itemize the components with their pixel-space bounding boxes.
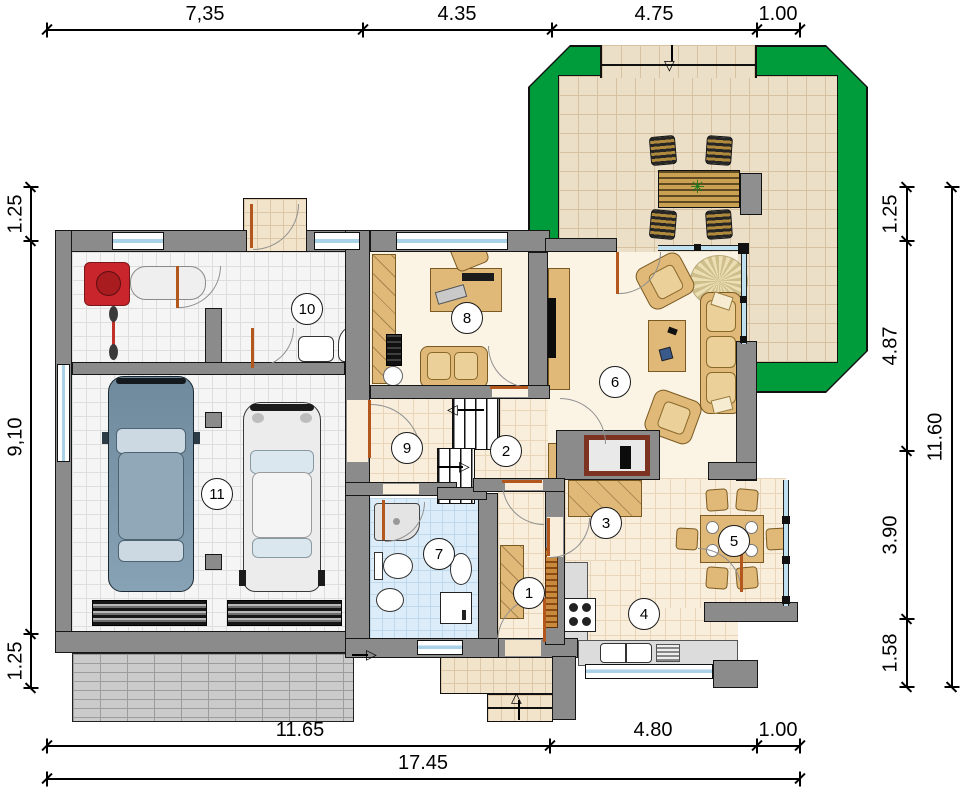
- room-number: 1: [525, 585, 533, 602]
- room-badge-11: 11: [201, 478, 233, 510]
- living-top-wall: [545, 238, 617, 252]
- car-white-headlight: [300, 413, 312, 423]
- door-leaf: [490, 386, 528, 389]
- window-kitchen: [585, 664, 713, 679]
- dim-tick: [945, 686, 960, 688]
- door-leaf: [176, 266, 179, 308]
- glass-mullion: [782, 556, 790, 564]
- washing-machine: [440, 592, 472, 624]
- room-badge-3: 3: [590, 507, 622, 539]
- office-side-table: [383, 366, 403, 386]
- terrace-step-line: [600, 64, 757, 66]
- room-badge-9: 9: [391, 432, 423, 464]
- room-badge-8: 8: [451, 302, 483, 334]
- window-garage-left: [57, 364, 70, 462]
- garage-door: [227, 600, 342, 626]
- terrace-entry-step: [600, 45, 757, 78]
- floor-plan: ▽ ✳ △ ▷: [0, 0, 966, 800]
- living-right-jut: [708, 462, 757, 480]
- window-bathroom: [417, 640, 463, 655]
- dim-line-bottom-outer: [47, 778, 800, 780]
- tv-screen: [548, 298, 556, 358]
- stove-burner: [582, 617, 591, 626]
- stairs-arrow-icon: ▷: [459, 459, 470, 473]
- door-gap: [383, 484, 419, 494]
- garage-front-wall: [55, 631, 370, 653]
- room-number: 4: [640, 606, 648, 623]
- room-badge-1: 1: [513, 577, 545, 609]
- window-office: [396, 232, 508, 250]
- car-blue-mirror: [102, 432, 108, 444]
- dim-line-bottom-inner: [47, 745, 800, 747]
- stove-burner: [569, 617, 578, 626]
- door-gap: [505, 640, 541, 656]
- porch-right-wall: [552, 656, 576, 720]
- terrace-chair: [705, 135, 733, 166]
- glass-dining-bay: [783, 480, 789, 606]
- room-badge-7: 7: [423, 538, 455, 570]
- door-leaf: [543, 598, 546, 642]
- window-utility-1: [112, 232, 164, 250]
- dim-tick: [24, 240, 39, 242]
- car-white-front-trim: [250, 404, 314, 411]
- terrace-entry-arrow-icon: ▽: [664, 58, 675, 72]
- dim-label-bottom-1: 11.65: [276, 719, 325, 742]
- room-number: 10: [299, 301, 316, 318]
- glass-mullion: [782, 596, 790, 604]
- dim-label-top-3: 4.75: [635, 3, 674, 26]
- dim-label-left-3: 1.25: [5, 642, 28, 681]
- dining-chair: [675, 527, 698, 550]
- room-badge-5: 5: [718, 525, 750, 557]
- dim-label-right-total: 11.60: [925, 413, 948, 462]
- room-number: 7: [435, 546, 443, 563]
- window-utility-2: [314, 232, 360, 250]
- lawn-mower-wheel: [96, 271, 121, 296]
- room-number: 5: [730, 533, 738, 550]
- dim-tick: [900, 240, 915, 242]
- glass-mullion: [694, 244, 701, 251]
- dim-tick: [900, 186, 915, 188]
- car-white-wheel: [318, 570, 325, 586]
- dim-tick: [362, 23, 364, 38]
- stove-burner: [569, 603, 578, 612]
- door-leaf: [250, 204, 253, 248]
- dim-tick: [551, 23, 553, 38]
- dim-label-right-3: 3.90: [880, 516, 903, 555]
- dim-label-left-2: 9,10: [5, 418, 28, 457]
- dim-tick: [24, 687, 39, 689]
- utility-garage-wall: [72, 362, 345, 375]
- terrace-grill: [740, 173, 762, 215]
- coat-rack: [545, 548, 558, 628]
- dim-label-total: 17.45: [398, 752, 448, 775]
- glass-mullion: [740, 336, 747, 343]
- dining-chair: [735, 488, 759, 512]
- dim-label-top-4: 1.00: [759, 3, 798, 26]
- kitchen-stove: [564, 598, 596, 632]
- dim-line-left: [30, 187, 32, 688]
- terrace-chair: [705, 209, 733, 240]
- garage-door: [92, 600, 207, 626]
- living-right-wall: [736, 341, 757, 481]
- room-badge-6: 6: [599, 366, 631, 398]
- glass-mullion: [740, 296, 747, 303]
- dining-plate: [706, 521, 719, 534]
- room-number: 6: [611, 374, 619, 391]
- dining-chair: [705, 488, 728, 511]
- dim-tick: [900, 618, 915, 620]
- toilet-tank: [374, 552, 383, 580]
- garage-pillar: [205, 412, 222, 428]
- dim-tick: [24, 186, 39, 188]
- dim-tick: [46, 772, 48, 787]
- dim-line-right-outer: [951, 187, 953, 687]
- door-leaf: [502, 480, 542, 483]
- dim-tick: [799, 739, 801, 754]
- dim-line-right-inner: [906, 187, 908, 687]
- entrance-arrow-icon: △: [511, 690, 522, 704]
- door-leaf: [547, 518, 550, 556]
- terrace-plant-icon: ✳: [690, 180, 705, 194]
- room-badge-10: 10: [291, 293, 323, 325]
- dim-tick: [46, 739, 48, 754]
- door-leaf: [251, 328, 254, 368]
- bidet-bowl: [376, 588, 404, 612]
- terrace-chair: [649, 135, 677, 166]
- stairs-arrow-line: [458, 409, 484, 411]
- car-blue-rear-window: [118, 540, 184, 562]
- dim-tick: [900, 450, 915, 452]
- car-white-headlight: [252, 413, 264, 423]
- room-number: 3: [602, 515, 610, 532]
- car-blue-spoiler: [116, 378, 186, 384]
- dim-tick: [549, 739, 551, 754]
- car-white-wheel: [239, 570, 246, 586]
- garage-pillar: [205, 554, 222, 570]
- dim-label-right-2: 4.87: [880, 327, 903, 366]
- utility-stub-wall: [205, 308, 222, 366]
- room-number: 11: [209, 486, 225, 503]
- door-leaf: [368, 400, 371, 458]
- office-living-wall: [528, 252, 548, 397]
- dim-tick: [799, 772, 801, 787]
- entrance-step-line: [487, 707, 553, 709]
- door-leaf: [616, 252, 619, 294]
- utility-sink: [298, 336, 334, 362]
- car-blue-windshield: [116, 428, 186, 454]
- dim-label-right-1: 1.25: [880, 195, 903, 234]
- stairs-arrow-icon: ◁: [447, 402, 458, 416]
- room-number: 8: [463, 310, 471, 327]
- car-blue-mirror: [194, 432, 200, 444]
- glass-mullion: [782, 516, 790, 524]
- dim-tick: [799, 23, 801, 38]
- car-blue-roof: [118, 452, 184, 540]
- office-sofa-cushion: [427, 352, 451, 380]
- office-sofa-cushion: [454, 352, 478, 380]
- car-white-roof: [252, 472, 312, 538]
- glass-mullion: [738, 243, 749, 254]
- kitchen-right-wall: [713, 660, 758, 688]
- coffee-table: [648, 320, 686, 372]
- living-sofa-cushion: [706, 336, 736, 368]
- door-gap: [347, 400, 368, 462]
- driveway: [72, 653, 354, 722]
- kitchen-drainer: [656, 644, 680, 662]
- terrace-chair: [649, 209, 677, 240]
- dim-label-bottom-3: 1.00: [759, 719, 798, 742]
- dim-label-top-2: 4.35: [438, 3, 477, 26]
- bicycle-wheel: [109, 306, 118, 322]
- entrance-porch: [440, 656, 553, 694]
- dim-label-right-4: 1.58: [880, 634, 903, 673]
- glass-corner-top: [658, 245, 746, 251]
- room-number: 9: [403, 440, 411, 457]
- dim-tick: [900, 686, 915, 688]
- dim-label-bottom-2: 4.80: [634, 719, 673, 742]
- fireplace-firebox: [620, 446, 631, 469]
- dim-line-top: [47, 29, 800, 31]
- room-number: 2: [502, 443, 510, 460]
- office-shelf: [386, 334, 402, 366]
- door-leaf: [382, 500, 385, 540]
- washing-machine-door: [462, 610, 466, 620]
- side-door-arrow-icon: ▷: [366, 647, 377, 661]
- dim-label-top-1: 7,35: [186, 3, 225, 26]
- bath-hall-wall: [478, 493, 498, 645]
- room-badge-2: 2: [490, 435, 522, 467]
- dim-tick: [24, 633, 39, 635]
- dim-label-left-1: 1.25: [5, 195, 28, 234]
- dim-tick: [945, 186, 960, 188]
- toilet-bowl: [383, 553, 413, 579]
- dim-tick: [46, 23, 48, 38]
- car-white-windshield: [250, 450, 314, 474]
- kitchen-sink-divider: [625, 644, 627, 662]
- office-keyboard: [462, 273, 494, 281]
- stove-burner: [582, 603, 591, 612]
- car-white-rear-window: [252, 538, 312, 558]
- room-badge-4: 4: [628, 598, 660, 630]
- bicycle-wheel: [109, 344, 118, 360]
